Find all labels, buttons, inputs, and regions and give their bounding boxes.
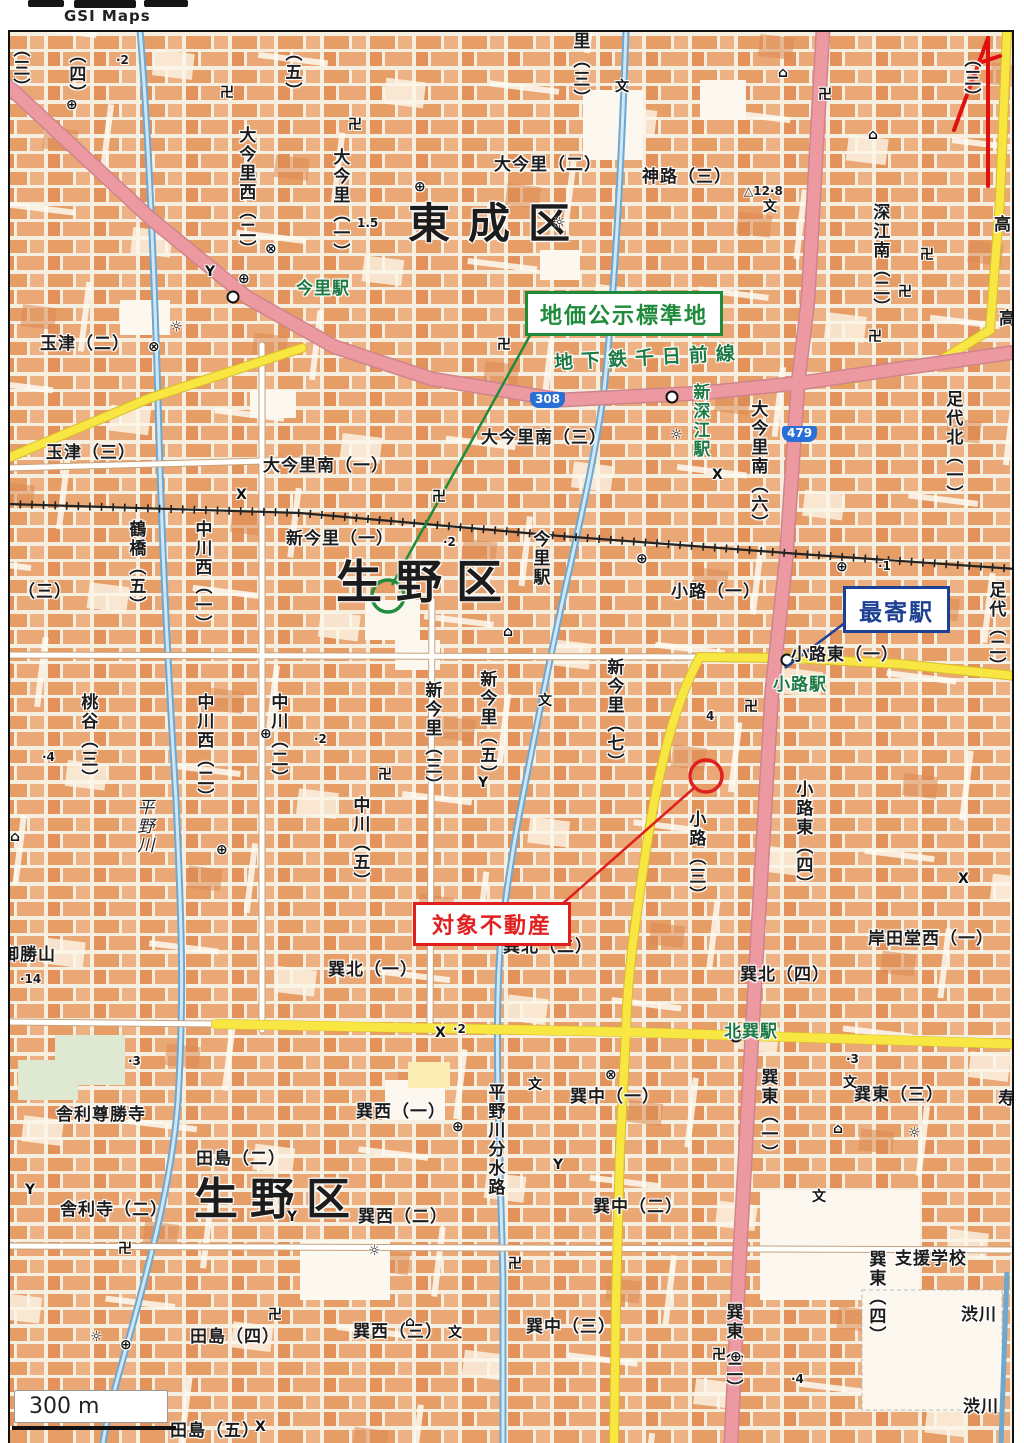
- facility-icon: ⌂: [868, 128, 878, 142]
- map-label: 御勝山: [8, 946, 56, 964]
- map-label: 巽東（四）: [866, 1250, 884, 1345]
- app-header: GSI Maps: [0, 0, 1024, 30]
- map-label: 北巽駅: [724, 1023, 778, 1041]
- scale-bar: 300 m: [14, 1390, 168, 1423]
- map-label: 桃谷（三）: [78, 693, 96, 788]
- temple-icon: 卍: [898, 285, 912, 299]
- post-office-icon: ⊕: [414, 180, 426, 194]
- police-box-icon: X: [712, 468, 723, 482]
- map-label: 神路（三）: [642, 168, 732, 186]
- scale-bar-line: [12, 1426, 176, 1430]
- gsi-map-page: GSI Maps: [0, 0, 1024, 1443]
- government-icon: ☼: [553, 216, 566, 230]
- map-label: 小路（三）: [686, 810, 704, 905]
- map-label: 地下鉄千日前線: [554, 343, 744, 373]
- police-box-icon: X: [236, 488, 247, 502]
- map-label: 田島（二）: [196, 1150, 286, 1168]
- map-label: （五）: [282, 44, 300, 101]
- police-station-icon: ⊗: [265, 242, 277, 256]
- facility-icon: ⌂: [503, 625, 513, 639]
- map-label: 舎利寺（二）: [60, 1201, 168, 1219]
- temple-icon: 卍: [744, 700, 758, 714]
- map-label: ·4: [42, 751, 55, 764]
- map-label: 舎利尊勝寺: [56, 1106, 146, 1124]
- map-label: 新今里（三）: [422, 681, 440, 795]
- temple-icon: 卍: [348, 118, 362, 132]
- police-box-icon: X: [435, 1026, 446, 1040]
- map-label: 小路東（四）: [793, 780, 811, 894]
- map-label: ·3: [846, 1053, 859, 1066]
- map-label: 支援学校: [895, 1250, 967, 1268]
- fire-station-icon: Y: [553, 1158, 563, 1172]
- map-label: 4: [706, 710, 714, 723]
- post-office-icon: ⊕: [216, 843, 228, 857]
- map-label: 平野川分水路: [485, 1083, 503, 1197]
- facility-icon: ⌂: [778, 66, 788, 80]
- facility-icon: ⌂: [10, 830, 20, 844]
- map-label: 今里駅: [296, 280, 350, 298]
- map-label: △12·8: [744, 185, 783, 198]
- temple-icon: 卍: [497, 338, 511, 352]
- fire-station-icon: Y: [205, 265, 215, 279]
- post-office-icon: ⊕: [730, 1350, 742, 1364]
- post-office-icon: ⊕: [120, 1338, 132, 1352]
- map-label: 中川西（二）: [194, 693, 212, 807]
- school-icon: 文: [448, 1326, 462, 1340]
- map-label: 巽東（一）: [758, 1068, 776, 1163]
- government-icon: ☼: [170, 320, 183, 334]
- temple-icon: 卍: [268, 1308, 282, 1322]
- fire-station-icon: Y: [287, 1210, 297, 1224]
- map-label: 大今里西（二）: [236, 126, 254, 259]
- temple-icon: 卍: [818, 88, 832, 102]
- map-label: 中川西（一）: [192, 520, 210, 634]
- post-office-icon: ⊕: [66, 98, 78, 112]
- map-label: 巽中（三）: [526, 1318, 616, 1336]
- map-label: 生野区: [194, 1176, 362, 1224]
- government-icon: ☼: [90, 1330, 103, 1344]
- map-label: （三）: [10, 40, 28, 97]
- facility-icon: ⌂: [833, 1122, 843, 1136]
- map-label: 寿: [998, 1090, 1014, 1108]
- school-icon: 文: [763, 200, 777, 214]
- map-label: 新今里（一）: [286, 530, 394, 548]
- school-icon: 文: [528, 1078, 542, 1092]
- map-label: 大今里南（三）: [481, 429, 607, 447]
- map-label: 巽西（三）: [353, 1323, 443, 1341]
- map-label: 高: [999, 310, 1014, 328]
- map-label: 巽西（二）: [358, 1208, 448, 1226]
- map-label: 大今里南（一）: [263, 457, 389, 475]
- standard-site-annotation: 地価公示標準地: [525, 291, 723, 336]
- map-label: 玉津（二）: [40, 335, 130, 353]
- map-label: 岸田堂西（一）: [868, 930, 994, 948]
- post-office-icon: ⊕: [260, 727, 272, 741]
- temple-icon: 卍: [378, 768, 392, 782]
- map-label: 渋川: [961, 1306, 997, 1324]
- map-label: 308: [530, 392, 565, 408]
- map-label: ·2: [116, 54, 129, 67]
- temple-icon: 卍: [920, 248, 934, 262]
- map-label: 中川（五）: [350, 796, 368, 891]
- post-office-icon: ⊕: [836, 560, 848, 574]
- government-icon: ☼: [908, 1126, 921, 1140]
- map-label: （三）: [18, 583, 72, 601]
- map-label: 1.5: [357, 217, 378, 230]
- map-label: 新深江駅: [690, 383, 708, 459]
- map-label: 足代北（一）: [943, 390, 961, 504]
- government-icon: ☼: [670, 428, 683, 442]
- map-label: ·2: [443, 536, 456, 549]
- school-icon: 文: [812, 1190, 826, 1204]
- temple-icon: 卍: [432, 490, 446, 504]
- post-office-icon: ⊕: [238, 272, 250, 286]
- map-label: ·2: [314, 733, 327, 746]
- police-box-icon: X: [958, 872, 969, 886]
- map-label: 巽中（一）: [570, 1088, 660, 1106]
- post-office-icon: ⊕: [452, 1120, 464, 1134]
- map-label: 小路（一）: [671, 583, 761, 601]
- map-label: ·1: [878, 560, 891, 573]
- map-label: 里（三）: [570, 32, 588, 108]
- map-label: 巽西（一）: [356, 1103, 446, 1121]
- gsi-logo-icon: [144, 0, 188, 7]
- temple-icon: 卍: [508, 1257, 522, 1271]
- police-station-icon: ⊗: [148, 340, 160, 354]
- map-label: 大今里南（六）: [748, 400, 766, 533]
- temple-icon: 卍: [220, 86, 234, 100]
- fire-station-icon: Y: [25, 1183, 35, 1197]
- school-icon: 文: [615, 80, 629, 94]
- subject-property-annotation: 対象不動産: [413, 902, 571, 946]
- map-label: 新今里（五）: [477, 670, 495, 784]
- map-label: 鶴橋（五）: [126, 520, 144, 615]
- map-label: 生野区: [336, 558, 516, 608]
- map-label: （四）: [66, 46, 84, 103]
- map-label: 足代（二）: [986, 581, 1004, 676]
- temple-icon: 卍: [118, 1242, 132, 1256]
- map-canvas[interactable]: 地価公示標準地 最寄駅 対象不動産 300 m （三）（四）·2（五）里（三）（…: [8, 30, 1014, 1443]
- temple-icon: 卍: [712, 1348, 726, 1362]
- map-label: ·4: [791, 1373, 804, 1386]
- map-label: （三）: [961, 50, 979, 107]
- fire-station-icon: Y: [478, 776, 488, 790]
- map-label: 大今里（一）: [330, 148, 348, 262]
- map-label: 今里駅: [530, 530, 548, 587]
- school-icon: 文: [843, 1076, 857, 1090]
- map-label: 玉津（三）: [46, 444, 136, 462]
- map-label: 深江南（二）: [870, 203, 888, 317]
- map-label: 田島（四）: [190, 1328, 280, 1346]
- police-station-icon: ⊗: [605, 1068, 617, 1082]
- map-label: 小路東（一）: [791, 646, 899, 664]
- map-label: 田島（五）: [170, 1422, 260, 1440]
- map-label: 渋川: [963, 1398, 999, 1416]
- map-label: 新今里（七）: [604, 658, 622, 772]
- gsi-logo-icon: [28, 0, 64, 7]
- school-icon: 文: [538, 694, 552, 708]
- facility-icon: ⌂: [405, 1315, 415, 1329]
- police-box-icon: X: [255, 1420, 266, 1434]
- map-labels-layer: 地価公示標準地 最寄駅 対象不動産 300 m （三）（四）·2（五）里（三）（…: [8, 30, 1014, 1443]
- map-label: 479: [782, 426, 817, 442]
- government-icon: ☼: [368, 1244, 381, 1258]
- map-label: 大今里（二）: [494, 156, 602, 174]
- map-label: 小路駅: [773, 676, 827, 694]
- map-label: 巽東（三）: [854, 1086, 944, 1104]
- post-office-icon: ⊕: [636, 552, 648, 566]
- map-label: 巽北（四）: [740, 966, 830, 984]
- map-label: 巽北（一）: [328, 961, 418, 979]
- map-label: 巽中（二）: [593, 1198, 683, 1216]
- map-label: 平野川: [134, 798, 152, 855]
- map-label: ·3: [128, 1055, 141, 1068]
- nearest-station-annotation: 最寄駅: [843, 586, 950, 633]
- gsi-maps-logo-text: GSI Maps: [64, 7, 151, 25]
- temple-icon: 卍: [868, 330, 882, 344]
- map-label: ·14: [20, 973, 41, 986]
- map-label: 高: [994, 216, 1012, 234]
- map-label: ·2: [453, 1023, 466, 1036]
